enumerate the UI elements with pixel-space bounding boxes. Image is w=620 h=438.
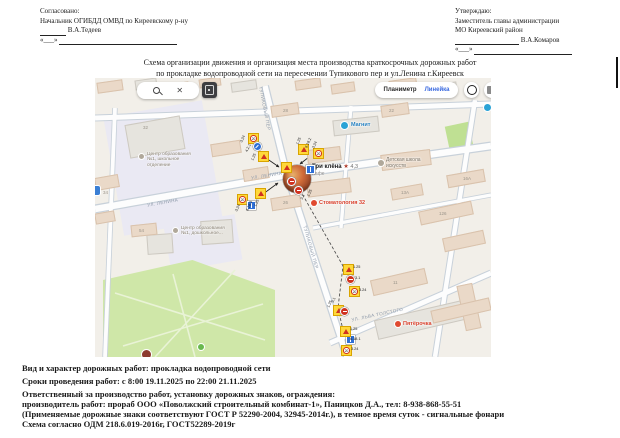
house-number: 34 xyxy=(103,190,108,195)
planimeter-button[interactable]: Планиметр xyxy=(384,87,417,93)
edu-school-poi-icon xyxy=(139,154,144,159)
responsible-line: Ответственный за производство работ, уст… xyxy=(22,389,602,399)
sign-gost-label: 3.24 xyxy=(359,288,366,292)
detour-direction-sign-icon[interactable] xyxy=(306,165,315,174)
cafe-rating: 4,3 xyxy=(350,164,358,170)
art-school-poi-label: Детская школа искусств xyxy=(386,158,421,169)
pyaterochka-poi-label: Пятёрочка xyxy=(403,321,432,327)
clipped-teal-poi-icon xyxy=(484,104,491,111)
date-quotes: «___» xyxy=(40,36,58,44)
sign-gost-label: 1.25 xyxy=(353,265,360,269)
magnit-poi-icon xyxy=(341,122,348,129)
page-edge-artifact xyxy=(616,57,618,88)
work-dates-line: Сроки проведения работ: с 8:00 19.11.202… xyxy=(22,376,602,386)
approval-right-heading: Утверждаю: xyxy=(455,7,572,17)
park-poi-icon xyxy=(198,344,204,350)
date-line xyxy=(59,36,177,45)
scheme-basis-line: Схема согласно ОДМ 218.6.019-2016г, ГОСТ… xyxy=(22,419,602,429)
brush-icon xyxy=(487,86,491,94)
map-search-bar[interactable]: ✕ xyxy=(137,82,199,99)
tool-icon xyxy=(205,85,214,95)
detour-sign-icon[interactable] xyxy=(253,142,262,151)
clipped-blue-poi-icon xyxy=(95,186,100,195)
search-icon[interactable] xyxy=(153,87,161,95)
house-number: 13А xyxy=(401,190,409,195)
pyaterochka-poi-icon xyxy=(395,321,401,327)
edu-preschool-poi-label: Центр образования №1, дошкольное... xyxy=(181,226,233,237)
approval-right-name: В.А.Комаров xyxy=(521,36,560,44)
approval-left-title: Начальник ОГИБДД ОМВД по Киреевскому р-н… xyxy=(40,17,188,27)
house-number: 11 xyxy=(393,280,398,285)
work-details: Вид и характер дорожных работ: прокладка… xyxy=(22,363,602,429)
date-quotes: «___» xyxy=(455,45,473,53)
sign-gost-label: 6.18.1 xyxy=(350,337,361,341)
approval-right-title1: Заместитель главы администрации xyxy=(455,17,572,27)
clipped-poi-icon xyxy=(142,350,151,357)
house-number: 22 xyxy=(389,108,394,113)
close-icon[interactable]: ✕ xyxy=(176,86,183,95)
cafe-poi-label: Три клёна ★ 4,3 xyxy=(312,163,358,170)
house-number: 32 xyxy=(143,125,148,130)
roadwork-sign-icon[interactable] xyxy=(258,151,269,162)
art-school-poi-icon xyxy=(378,160,384,166)
approval-block-left: Согласовано: Начальник ОГИБДД ОМВД по Ки… xyxy=(40,7,188,45)
contractor-line: производитель работ: прораб ООО «Поволжс… xyxy=(22,399,602,409)
no-entry-sign-icon[interactable] xyxy=(346,275,355,284)
signature-line xyxy=(455,36,519,45)
map-tool-button[interactable] xyxy=(202,82,217,98)
circle-icon xyxy=(467,85,477,95)
approval-block-right: Утверждаю: Заместитель главы администрац… xyxy=(455,7,572,55)
approval-left-heading: Согласовано: xyxy=(40,7,188,17)
gost-line: (Применяемые дорожные знаки соответствую… xyxy=(22,409,602,419)
roadwork-sign-icon[interactable] xyxy=(281,162,292,173)
house-number: 28 xyxy=(283,108,288,113)
approval-right-title2: МО Киреевский район xyxy=(455,26,572,36)
circle-tool-button[interactable] xyxy=(464,82,479,98)
house-number: 126 xyxy=(439,211,447,216)
ruler-button[interactable]: Линейка xyxy=(425,87,450,93)
dental-poi-icon xyxy=(311,200,317,206)
signature-line xyxy=(40,27,66,36)
dental-poi-label: Стоматология 32 xyxy=(319,200,365,206)
magnit-poi-label: Магнит xyxy=(351,122,370,128)
scheme-title: Схема организации движения и организация… xyxy=(0,58,620,79)
sign-gost-label: 3.24 xyxy=(351,347,358,351)
map-canvas[interactable]: 32 34 28 22 26 54 11 13А 16А 126 Тупиков… xyxy=(95,78,491,357)
map-building xyxy=(146,233,173,255)
sign-gost-label: 3.1 xyxy=(355,276,360,280)
approval-left-name: В.А.Тедеев xyxy=(68,26,101,34)
sign-gost-label: 1.25 xyxy=(350,327,357,331)
no-entry-sign-icon[interactable] xyxy=(287,177,296,186)
house-number: 26 xyxy=(283,200,288,205)
work-type-line: Вид и характер дорожных работ: прокладка… xyxy=(22,363,602,373)
date-line xyxy=(474,46,572,55)
edu-school-poi-label: Центр образования №1, школьное отделение xyxy=(147,152,193,168)
measure-toolbar: Планиметр Линейка xyxy=(375,82,458,98)
roadwork-sign-icon[interactable] xyxy=(255,188,266,199)
scheme-title-line1: Схема организации движения и организация… xyxy=(0,58,620,69)
house-number: 54 xyxy=(139,228,144,233)
house-number: 16А xyxy=(463,176,471,181)
rating-star-icon: ★ xyxy=(343,164,348,170)
no-entry-sign-icon[interactable] xyxy=(340,307,349,316)
cafe-name: Три клёна xyxy=(312,164,342,170)
speed-limit-20-sign-icon[interactable]: 20 xyxy=(313,148,324,159)
edu-preschool-poi-icon xyxy=(173,228,178,233)
